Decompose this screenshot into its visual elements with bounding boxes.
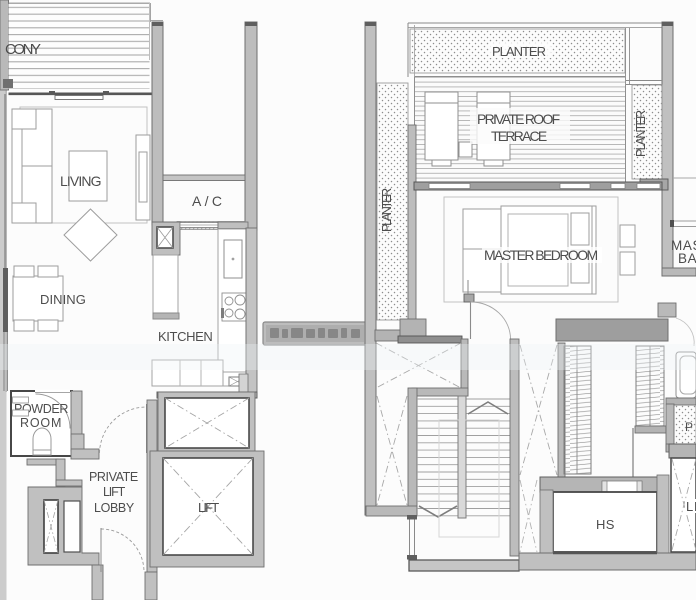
svg-text:TERRACE: TERRACE	[491, 128, 548, 144]
svg-text:LOBBY: LOBBY	[94, 501, 135, 515]
svg-text:LIVING: LIVING	[60, 173, 103, 189]
svg-text:LIFT: LIFT	[103, 485, 126, 499]
svg-text:CONY: CONY	[5, 41, 41, 58]
svg-text:LI: LI	[686, 499, 696, 514]
svg-text:PLANTER: PLANTER	[492, 44, 547, 59]
svg-text:LIFT: LIFT	[198, 500, 220, 515]
svg-text:KITCHEN: KITCHEN	[158, 329, 214, 344]
svg-text:PLANTER: PLANTER	[380, 187, 394, 232]
svg-text:PLANTER: PLANTER	[634, 109, 648, 157]
svg-text:A/C: A/C	[192, 193, 223, 209]
svg-text:PRIVATE: PRIVATE	[89, 470, 139, 484]
svg-text:PRIVATE ROOF: PRIVATE ROOF	[477, 111, 561, 127]
svg-text:MASTER BEDROOM: MASTER BEDROOM	[484, 247, 599, 263]
svg-text:BA: BA	[678, 251, 696, 266]
svg-text:HS: HS	[596, 517, 615, 532]
svg-text:DINING: DINING	[40, 292, 87, 307]
svg-text:P: P	[685, 420, 693, 434]
